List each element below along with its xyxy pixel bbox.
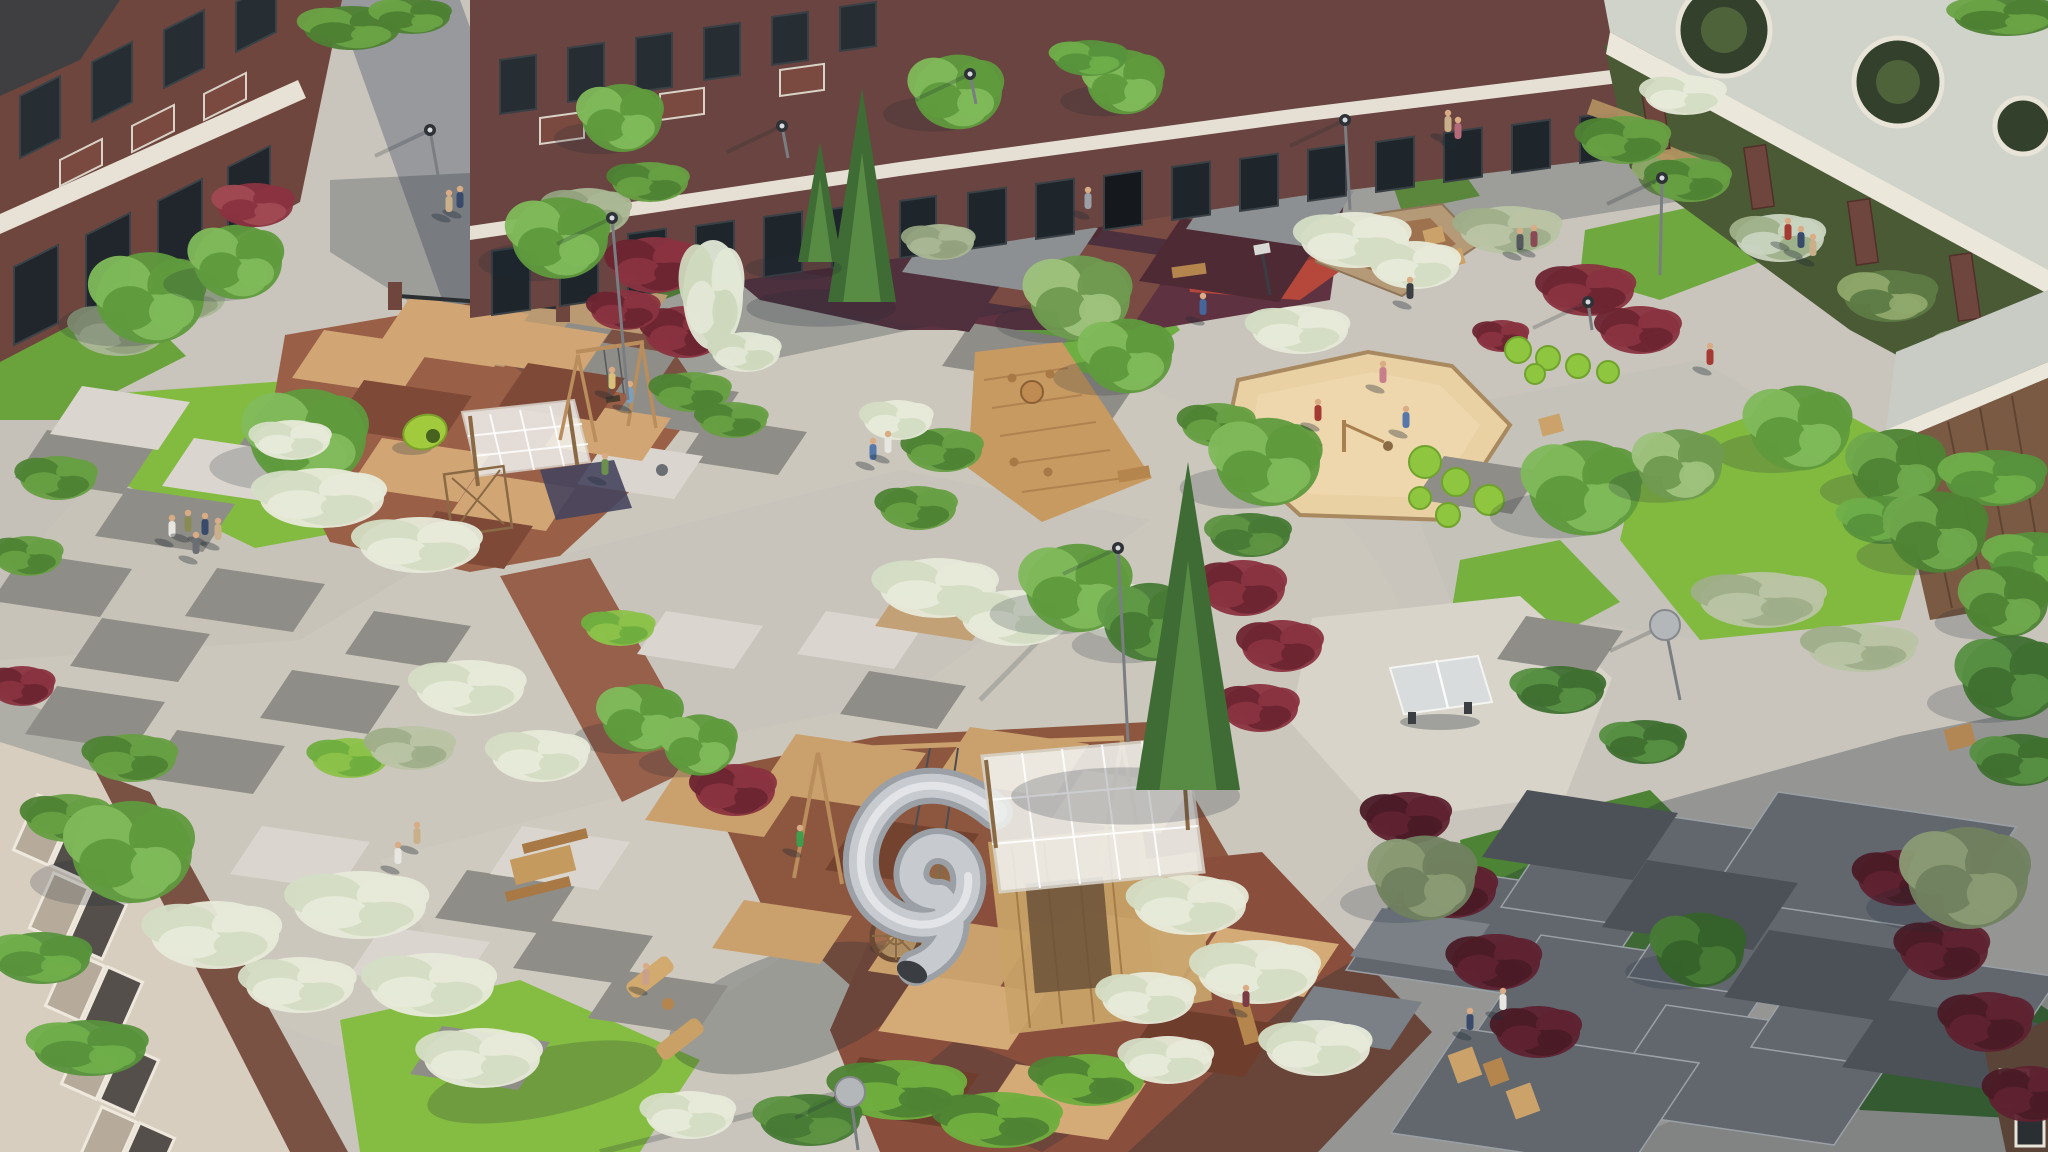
shrub [41,1041,97,1068]
child [1810,240,1817,256]
pedestrian-group [193,538,200,554]
tree [1799,424,1841,458]
shrub [1951,471,2001,498]
shrub [999,1117,1049,1139]
red-hedge-shaded [1905,942,1949,971]
child-playground [602,453,608,459]
silver-tree-shaded [1967,873,2017,914]
street-lamp [780,124,785,129]
tree [1089,346,1133,382]
person-on-bench [1243,991,1250,1007]
topiary-ball [1442,468,1470,496]
tree [699,742,729,766]
pedestrian-group [202,519,209,535]
red-shrub [1259,706,1291,725]
deck-chair [1044,468,1053,477]
pedestrian [1407,283,1414,299]
gate-pillar [388,282,402,310]
tree [1110,612,1156,650]
white-flower-shrub [539,753,579,774]
person-lounging [643,963,649,969]
red-shrub [1639,328,1673,347]
balcony [780,64,824,96]
red-shrub [1247,639,1287,664]
white-flower-shrub [745,350,774,366]
white-flower-shrub [291,438,323,454]
red-hedge-shaded [1987,1019,2024,1043]
shrub [703,415,737,432]
white-flower-shrub [1684,93,1718,109]
red-hedge-shaded [1501,1025,1543,1050]
white-flower-tree [712,290,737,334]
shrub-shaded [1981,753,2025,778]
red-hedge-shaded [1407,815,1442,836]
pedestrian [1445,116,1452,132]
pedestrian [457,192,464,208]
shrub [766,1113,816,1138]
shrub [619,626,648,640]
red-shrub [595,305,629,324]
tree [607,709,647,742]
child-sandpit [1315,399,1321,405]
window [704,23,740,80]
white-flower-shrub [159,926,223,959]
tree [1222,451,1274,493]
shrub [943,448,975,466]
white-flower-shrub [498,749,546,774]
pedestrian [1531,231,1538,247]
red-shrub [21,684,48,700]
white-flower-shrub [431,1050,489,1079]
pedestrian-group [185,516,192,532]
silver-shrub [939,240,968,254]
child-sandpit [1315,405,1322,421]
tree [1937,528,1977,561]
pedestrian-group [185,510,191,516]
tower-interior [1025,877,1112,993]
pedestrian-group [193,532,199,538]
shrub [1089,1077,1134,1098]
exerciser [1085,187,1091,193]
parent-walking [414,822,420,828]
person-seated [1500,988,1506,994]
white-flower-shrub [1108,991,1154,1016]
street-lamp [428,128,433,133]
person-seated [1500,994,1507,1010]
topiary-ball [1597,361,1619,383]
pedestrian [1707,349,1714,365]
tree [1032,577,1084,619]
balcony [660,88,704,120]
window [1512,120,1550,173]
red-shrub [1479,332,1505,347]
pedestrian-group [169,515,175,521]
white-flower-shrub [214,932,268,959]
red-hedge-shaded [1943,947,1980,971]
topiary-ball [1525,364,1545,384]
shrub [809,1117,851,1138]
white-flower-shrub [252,978,306,1005]
window [1240,154,1278,211]
white-flower-shrub [431,982,483,1008]
jogger [1200,299,1207,315]
pedestrian [446,190,452,196]
shrub [1994,475,2036,497]
tree [1536,476,1592,522]
window [1308,145,1346,201]
tree [1756,417,1806,458]
litter-bin [656,464,668,476]
deck-chair [1046,370,1055,379]
pod-opening [426,429,440,443]
red-shrub [1281,643,1315,664]
white-flower-shrub [1167,1058,1204,1077]
woman-green-dress [797,825,803,831]
street-lamp [968,72,973,77]
person-on-bench [1243,985,1249,991]
shrub [1089,56,1119,70]
white-flower-shrub [299,982,344,1004]
woman-green-dress [797,831,804,847]
tree [1092,74,1130,105]
table-leg [1408,712,1416,724]
shrub [649,180,681,196]
pedestrian [1445,110,1451,116]
tree [1969,593,2011,627]
sand-digger-scoop [1383,441,1393,451]
red-shrub [1242,585,1277,607]
white-flower-shrub [1650,90,1690,109]
topiary-ball [1505,337,1531,363]
white-flower-shrub [716,347,750,366]
white-flower-shrub [267,490,329,519]
parent-sandpit [1380,367,1387,383]
deck-chair [1010,458,1019,467]
disc-lamp [1650,610,1680,640]
tree [2005,598,2040,627]
white-flower-shrub [1129,1054,1173,1077]
white-flower-tree [687,281,717,334]
hedge [1960,11,2012,30]
red-shrub [650,325,690,350]
shrub [732,418,761,432]
white-flower-shrub [1258,324,1306,347]
person-seated [1467,1008,1473,1014]
silver-tree-shaded [1915,865,1975,914]
white-flower-shrub [1317,1045,1361,1067]
red-shrub [624,308,653,324]
pedestrian-group [202,513,208,519]
person-lounging [643,969,650,985]
pedestrian [1707,343,1713,349]
window [500,55,536,114]
deck-table [1021,381,1043,403]
shrub [590,623,624,640]
pedestrian [1517,228,1523,234]
child [1810,234,1816,240]
red-shrub [1206,581,1248,608]
shrub [27,554,56,570]
red-shrub [254,203,286,221]
white-flower-shrub [1272,1041,1324,1068]
window [1376,137,1414,192]
white-flower-shrub [868,415,902,434]
pedestrian [870,438,876,444]
white-flower-shrub [1205,964,1265,995]
parent-sandpit [1380,361,1386,367]
tree [518,227,566,266]
shrub [917,506,949,524]
topiary-ball [1436,503,1460,527]
tree [1679,461,1714,490]
courtyard-scene [0,0,2048,1152]
silver-tree-shaded [1381,867,1431,908]
tree [1897,464,1936,495]
deck-chair [1008,374,1017,383]
tree [621,115,655,142]
red-shrub [616,258,660,285]
street-lamp [1116,546,1121,551]
child-walking [395,848,402,864]
silver-shrub [1466,224,1516,247]
shrub-shaded [1521,684,1565,707]
aerial-courtyard-render [0,0,2048,1152]
roof-opening-garden [1876,60,1920,104]
tree [668,737,704,766]
pedestrian [1455,123,1462,139]
pedestrian [1517,234,1524,250]
shrub [947,1113,1007,1140]
red-shrub [1605,324,1645,347]
table-leg [1464,702,1472,714]
child-swing [609,373,616,389]
shrub [659,387,697,406]
shrub-shaded [1610,736,1650,757]
silver-shrub [1509,228,1551,247]
tree [102,286,156,330]
shrub [317,753,355,772]
white-flower-shrub [422,681,476,708]
red-hedge-shaded [1371,811,1413,836]
jogger [1200,293,1206,299]
silver-shrub [1861,646,1906,665]
red-hedge-shaded [1495,959,1532,981]
shrub [1215,529,1255,550]
roof-opening [1995,98,2048,154]
red-shrub [700,783,740,808]
white-flower-shrub [377,977,439,1008]
white-flower-shrub [897,418,926,434]
window [636,33,672,92]
red-hedge-shaded [1537,1029,1572,1050]
tree-shaded [1699,946,1736,976]
window [772,12,808,65]
silver-shrub [1814,642,1868,665]
child [885,431,891,437]
street-lamp [1586,300,1591,305]
shrub [617,177,655,196]
hedge [2005,14,2048,30]
entrance-door [1104,171,1142,230]
pedestrian-group [1785,224,1792,240]
white-flower-shrub [259,435,297,454]
pedestrian [1455,117,1461,123]
white-flower-shrub [1257,969,1307,995]
white-flower-shrub [887,580,945,609]
window [1172,162,1210,220]
red-hedge-shaded [1949,1014,1993,1043]
white-flower-shrub [689,1113,726,1132]
exerciser [1085,193,1092,209]
red-shrub [734,787,768,808]
tree [1036,287,1086,328]
white-flower-shrub [1189,902,1236,926]
tree [1124,79,1156,105]
shrub [89,1045,136,1067]
child-playground [602,459,609,475]
window [1444,128,1482,182]
window [840,2,876,51]
shrub [57,476,89,494]
silver-shrub [375,742,417,763]
topiary-ball [1566,354,1590,378]
disc-lamp [835,1077,865,1107]
shrub-shaded [1559,688,1596,707]
window [1036,179,1074,239]
child-swing [609,367,615,373]
child-sandpit [1403,412,1410,428]
hedge [310,22,358,43]
shrub [0,951,48,976]
silver-shrub [1761,597,1813,619]
tree [587,109,627,142]
tree [1127,352,1164,382]
child-sandpit [1403,406,1409,412]
tree [1896,521,1944,560]
shrub [41,955,81,976]
pedestrian [1531,225,1537,231]
street-lamp [1660,176,1665,181]
shrub [691,390,723,406]
white-flower-shrub [481,1055,530,1079]
street-lamp [610,216,615,221]
shrub [1847,514,1889,537]
parent-walking [414,828,421,844]
pedestrian-group [1785,218,1791,224]
person-seated [1467,1014,1474,1030]
silver-shrub [411,746,446,764]
child-walking [395,842,401,848]
white-flower-shrub [321,495,373,519]
tree [199,252,243,288]
topiary-ball [1409,446,1441,478]
white-flower-shrub [1299,328,1339,347]
white-flower-shrub [1141,897,1197,926]
shrub [1689,178,1723,196]
shrub [1624,138,1661,157]
tree [1643,456,1685,490]
tree-shaded [1661,940,1705,976]
tree [1267,458,1311,493]
white-flower-shrub [1147,995,1186,1016]
street-lamp [1343,118,1348,123]
shrub [1058,53,1094,70]
hedge [379,11,417,28]
pedestrian [446,196,453,212]
white-flower-shrub [1376,259,1420,282]
roof-opening-garden [1701,7,1747,53]
silver-shrub [1707,593,1769,620]
white-flower-shrub [359,902,414,929]
pedestrian [1407,277,1413,283]
shrub-shaded [1644,740,1678,758]
shrub [131,756,168,775]
silver-tree-shaded [1424,874,1466,908]
shrub [885,502,923,523]
side-table [662,998,674,1010]
shrub [1042,1073,1096,1098]
tree [79,839,139,888]
shrub [1586,134,1630,157]
pedestrian-group [1798,232,1805,248]
child [885,437,892,453]
pergola-bush [1850,289,1896,314]
hedge [411,14,443,28]
red-shrub [1227,702,1265,725]
tree [131,847,181,888]
white-flower-shrub [367,538,427,565]
red-hedge-shaded [1457,955,1501,982]
pedestrian-group [215,524,222,540]
pedestrian-group [1798,226,1804,232]
shrub [93,752,137,775]
white-flower-shrub [1414,263,1451,282]
tree [1858,458,1904,496]
white-flower-shrub [469,685,514,707]
tree [237,258,274,288]
white-flower-shrub [651,1109,695,1132]
white-flower-shrub [1307,233,1361,260]
tree [1968,667,2018,708]
red-hedge-shaded [1993,1087,2035,1114]
topiary-ball [1409,487,1431,509]
pergola-bush [1889,293,1928,314]
street-lamp [1660,178,1662,275]
pedestrian [457,186,463,192]
white-flower-shrub [302,896,368,929]
pedestrian-group [215,518,221,524]
white-flower-shrub [419,542,469,564]
shrub [25,472,63,493]
shrub [911,444,949,465]
silver-shrub [910,237,944,254]
red-shrub [222,199,260,220]
shrub [1249,533,1283,551]
